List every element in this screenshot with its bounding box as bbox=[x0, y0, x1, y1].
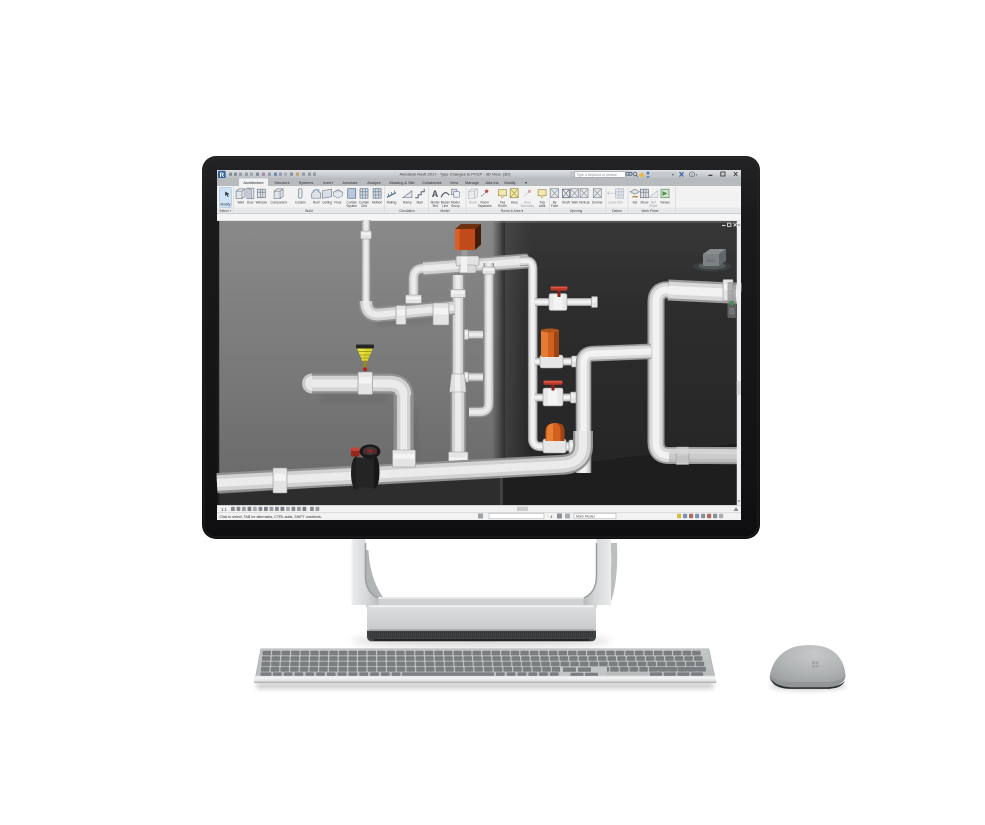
svg-text:Face: Face bbox=[551, 204, 558, 208]
svg-text:Stair: Stair bbox=[416, 201, 423, 205]
svg-text:Line: Line bbox=[442, 204, 448, 208]
svg-text:Manage: Manage bbox=[465, 181, 479, 185]
svg-text:?: ? bbox=[691, 173, 693, 177]
svg-text:Railing: Railing bbox=[387, 201, 397, 205]
svg-text:Plane: Plane bbox=[649, 204, 657, 208]
svg-text:Boundary: Boundary bbox=[521, 204, 535, 208]
svg-text:Wall: Wall bbox=[237, 201, 243, 205]
svg-text:▾: ▾ bbox=[672, 172, 674, 177]
svg-text:Mullion: Mullion bbox=[372, 201, 382, 205]
svg-text:Autodesk Revit 2017 - Type C: Autodesk Revit 2017 - Type Changes to PV… bbox=[400, 172, 512, 177]
svg-text:Massing & Site: Massing & Site bbox=[389, 181, 414, 185]
svg-text:Select: Select bbox=[219, 209, 228, 213]
svg-text:Area: Area bbox=[539, 204, 546, 208]
svg-text:R: R bbox=[220, 172, 225, 179]
svg-text:Room: Room bbox=[469, 201, 478, 205]
svg-text:Door: Door bbox=[247, 201, 255, 205]
svg-text:Window: Window bbox=[256, 201, 268, 205]
svg-text:▾: ▾ bbox=[525, 181, 527, 185]
svg-text:Room & Area ▾: Room & Area ▾ bbox=[501, 209, 524, 213]
svg-text:Structure: Structure bbox=[274, 181, 289, 185]
svg-text:Floor: Floor bbox=[334, 201, 342, 205]
svg-text:Work Plane: Work Plane bbox=[642, 209, 659, 213]
svg-text:System: System bbox=[346, 204, 357, 208]
svg-text:Area: Area bbox=[511, 201, 518, 205]
svg-text:Annotate: Annotate bbox=[342, 181, 357, 185]
svg-text:Text: Text bbox=[432, 204, 438, 208]
svg-text:Set: Set bbox=[633, 201, 638, 205]
svg-text:Analyze: Analyze bbox=[367, 181, 381, 185]
svg-text:Shaft: Shaft bbox=[562, 201, 570, 205]
svg-text:Grid: Grid bbox=[617, 201, 623, 205]
svg-text:Systems: Systems bbox=[299, 181, 314, 185]
svg-text:Group: Group bbox=[451, 204, 460, 208]
svg-text:Component: Component bbox=[270, 201, 287, 205]
svg-text:Modify: Modify bbox=[221, 203, 231, 207]
svg-text:Click to select, TAB for alter: Click to select, TAB for alternates, CTR… bbox=[220, 515, 322, 519]
svg-text:Main Model: Main Model bbox=[576, 515, 595, 519]
svg-text:Opening: Opening bbox=[570, 209, 583, 213]
svg-text:Circulation: Circulation bbox=[399, 209, 415, 213]
svg-text:Viewer: Viewer bbox=[660, 201, 671, 205]
svg-text:· 4: · 4 bbox=[548, 515, 552, 519]
svg-text:BACK: BACK bbox=[707, 259, 717, 263]
svg-text:Modify: Modify bbox=[504, 181, 515, 185]
svg-text:Ceiling: Ceiling bbox=[322, 201, 332, 205]
svg-text:Architecture: Architecture bbox=[243, 181, 263, 185]
svg-text:Wall: Wall bbox=[571, 201, 577, 205]
svg-text:Add-Ins: Add-Ins bbox=[485, 181, 498, 185]
svg-text:Level: Level bbox=[608, 201, 616, 205]
svg-text:Type a keyword or phrase: Type a keyword or phrase bbox=[577, 173, 617, 177]
svg-text:Column: Column bbox=[295, 201, 306, 205]
svg-text:View: View bbox=[450, 181, 458, 185]
svg-text:▾: ▾ bbox=[696, 173, 698, 177]
svg-text:Separator: Separator bbox=[478, 204, 493, 208]
svg-text:Grid: Grid bbox=[361, 204, 367, 208]
svg-text:Ramp: Ramp bbox=[403, 201, 412, 205]
svg-text:1:1: 1:1 bbox=[221, 507, 227, 512]
svg-text:Show: Show bbox=[640, 201, 649, 205]
svg-text:Roof: Roof bbox=[313, 201, 320, 205]
svg-text:Dormer: Dormer bbox=[592, 201, 604, 205]
svg-text:Build: Build bbox=[305, 209, 312, 213]
svg-text:Datum: Datum bbox=[612, 209, 622, 213]
svg-text:Room: Room bbox=[498, 204, 507, 208]
svg-text:Vertical: Vertical bbox=[579, 201, 590, 205]
svg-text:Collaborate: Collaborate bbox=[422, 181, 441, 185]
svg-text:Model: Model bbox=[441, 209, 450, 213]
svg-text:Insert: Insert bbox=[323, 181, 333, 185]
svg-text:A: A bbox=[432, 189, 439, 199]
